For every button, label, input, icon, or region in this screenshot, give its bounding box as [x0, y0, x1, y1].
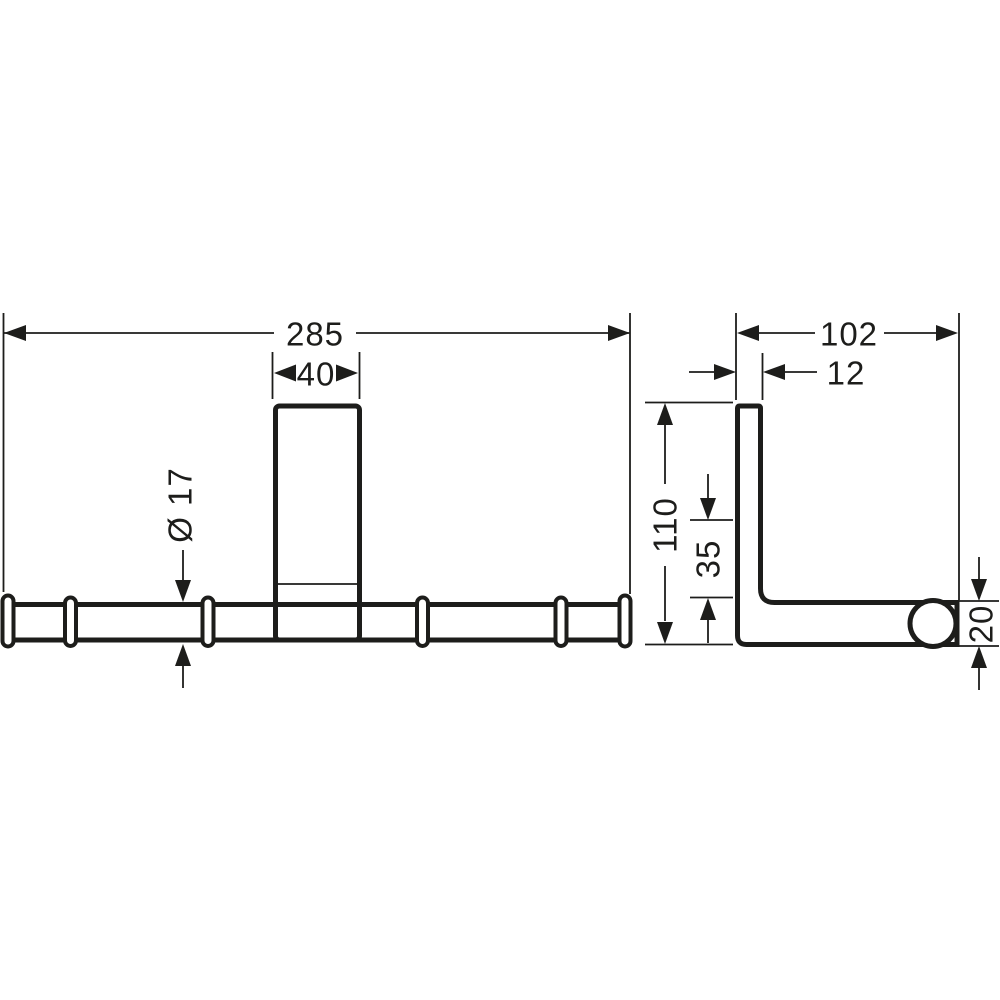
bar-end-cap-right: [620, 596, 631, 647]
arrowhead-up-icon: [700, 598, 716, 620]
technical-drawing: 285 40 Ø 17: [0, 0, 1000, 1000]
bar-joint-ring: [417, 598, 428, 647]
dim-bar-diameter: Ø 17: [162, 467, 199, 688]
side-product: [738, 406, 958, 647]
bar-end-cap-left: [3, 596, 14, 647]
front-view: 285 40 Ø 17: [3, 313, 631, 688]
arrowhead-right-icon: [336, 365, 358, 382]
arrowhead-down-icon: [657, 622, 673, 644]
dim-label-mount-offset: 35: [690, 540, 727, 579]
arrowhead-down-icon: [971, 579, 987, 601]
arrowhead-up-icon: [657, 403, 673, 425]
dim-label-end-diameter: 20: [963, 605, 1000, 644]
arrowhead-right-icon: [608, 325, 630, 341]
dim-plate-thickness: 12: [689, 353, 865, 400]
arrowhead-right-icon: [714, 364, 736, 380]
bar-joint-ring: [203, 598, 214, 647]
dim-label-depth: 102: [820, 316, 878, 353]
arrowhead-up-icon: [971, 646, 987, 668]
front-product: [3, 406, 631, 647]
dim-label-overall-width: 285: [286, 316, 344, 353]
arrowhead-down-icon: [175, 580, 191, 602]
drawing-svg: 285 40 Ø 17: [0, 0, 1000, 1000]
arrowhead-left-icon: [274, 365, 296, 382]
arrowhead-left-icon: [763, 364, 785, 380]
bar-cross-section: [910, 601, 956, 647]
dim-plate-width: 40: [273, 352, 360, 399]
bar-joint-ring: [556, 598, 567, 647]
dim-mount-offset: 35: [690, 474, 734, 643]
dim-label-plate-width: 40: [297, 356, 336, 393]
arrowhead-left-icon: [4, 325, 26, 341]
arrowhead-left-icon: [737, 325, 759, 341]
arrowhead-down-icon: [700, 498, 716, 520]
arrowhead-right-icon: [936, 325, 958, 341]
bar-joint-ring: [65, 598, 76, 647]
arrowhead-up-icon: [175, 644, 191, 666]
dim-label-height: 110: [647, 497, 684, 553]
side-view: 102 12 110: [645, 313, 1000, 690]
dim-end-diameter: 20: [959, 557, 1000, 690]
dim-label-bar-diameter: Ø 17: [162, 467, 199, 543]
dim-height: 110: [645, 403, 733, 645]
dim-label-plate-thickness: 12: [827, 355, 866, 392]
